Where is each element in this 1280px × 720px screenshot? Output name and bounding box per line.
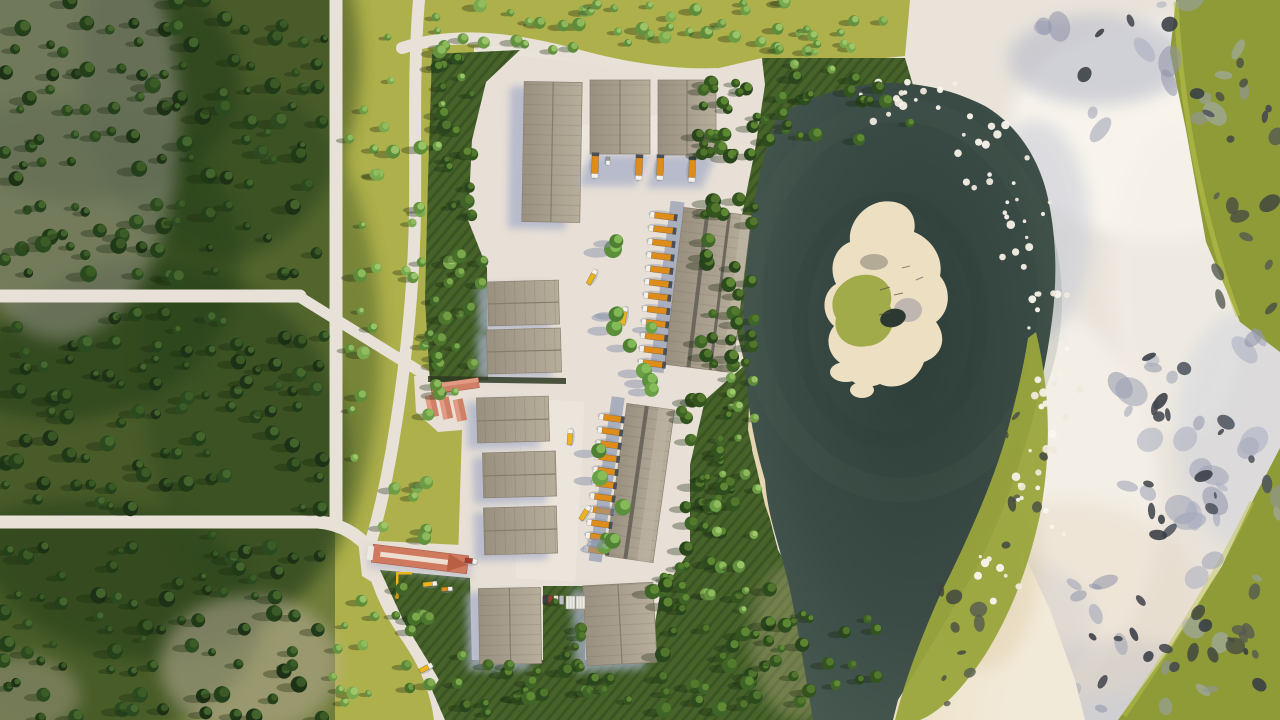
- warehouse-b1: [508, 81, 583, 229]
- warehouse-bottom-1: [466, 587, 541, 670]
- warehouse-row-1: [477, 280, 559, 331]
- render-viewport: [0, 0, 1280, 720]
- yard-truck: [604, 156, 610, 165]
- parked-car: [559, 596, 564, 605]
- island-green: [832, 275, 893, 347]
- container-unit: [576, 596, 585, 609]
- warehouse-row-2: [476, 328, 561, 379]
- warehouse-row-3: [466, 396, 549, 449]
- warehouse-row-5: [473, 506, 557, 561]
- site-plan-render: [0, 0, 1280, 720]
- warehouse-row-4: [472, 451, 556, 504]
- container-unit: [566, 596, 575, 609]
